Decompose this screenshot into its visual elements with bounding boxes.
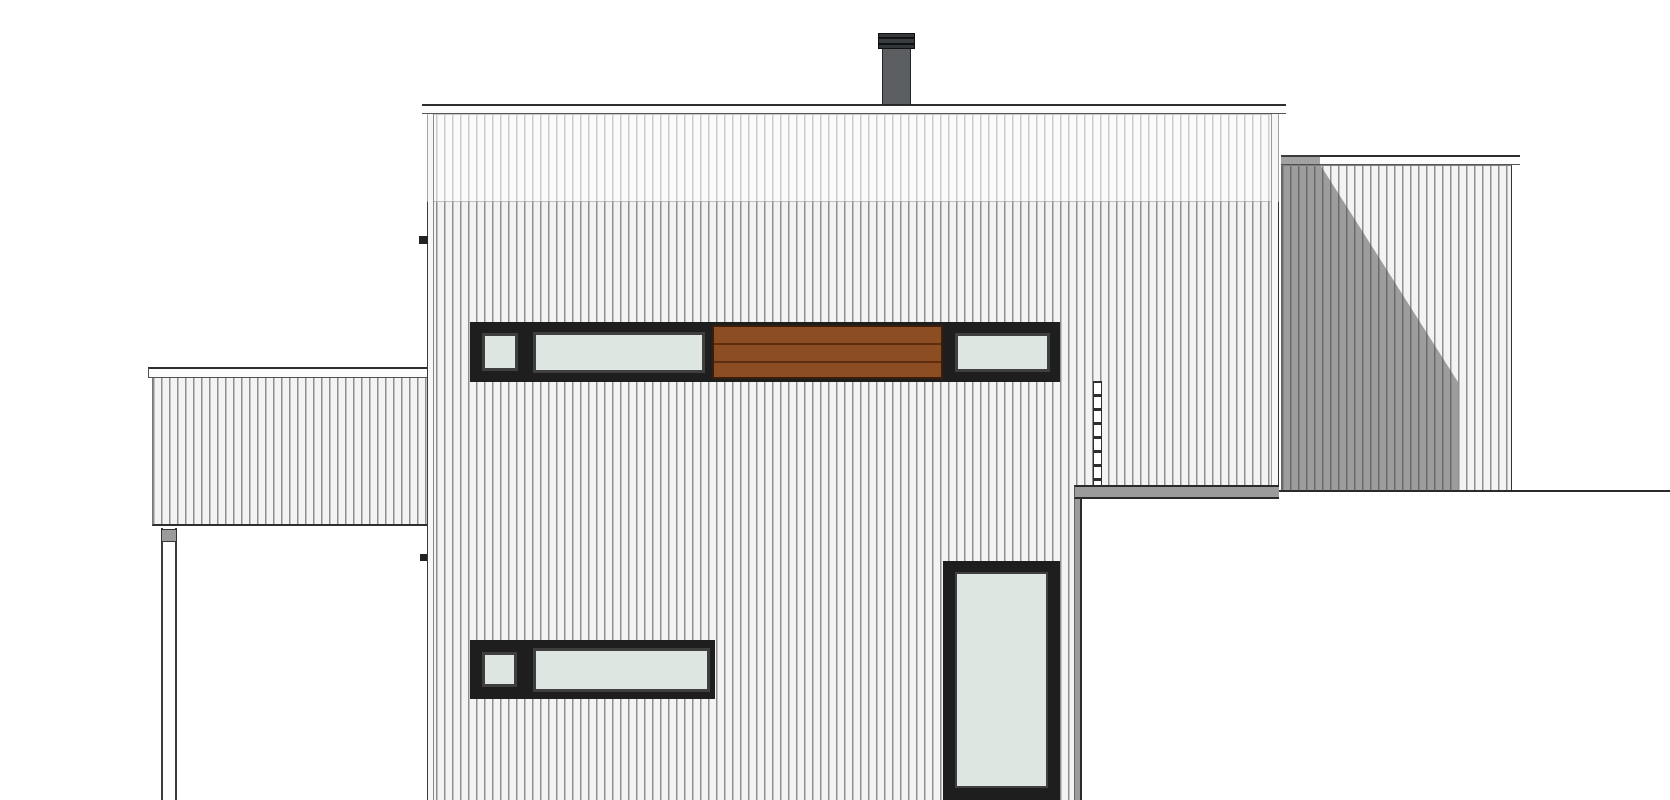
upper-window-band — [470, 322, 1060, 382]
chimney-cap — [878, 33, 915, 49]
left-wing-corner-post — [161, 528, 177, 800]
right-wing-wall-siding — [1281, 165, 1512, 492]
left-wing-post-cap — [161, 529, 177, 542]
ground-line — [1279, 490, 1670, 492]
hidden-downpipe-dashed-line — [1093, 381, 1102, 486]
lower-window-small — [482, 652, 517, 687]
left-wing-wall-siding — [152, 378, 427, 526]
lower-window-band — [470, 640, 715, 699]
lower-window-wide — [533, 648, 710, 692]
right-wing-fascia-shadow — [1281, 155, 1320, 165]
tall-window — [943, 561, 1060, 800]
upper-window-wide — [533, 332, 705, 373]
foreground-roof-edge — [1074, 485, 1279, 499]
main-wall-upper-tint-band — [427, 114, 1279, 202]
main-corner-board-left — [428, 114, 434, 800]
elevation-drawing — [0, 0, 1670, 800]
downpipe-bracket-upper — [419, 236, 428, 244]
main-roof-fascia — [422, 104, 1286, 114]
downpipe-bracket-lower — [420, 554, 427, 561]
foreground-wall — [1082, 499, 1670, 800]
wood-slat-panel — [712, 325, 943, 379]
chimney — [882, 47, 911, 105]
upper-window-right — [955, 333, 1050, 372]
tall-window-glass — [955, 572, 1048, 788]
upper-window-small — [482, 333, 518, 371]
foreground-roof-side-edge — [1074, 497, 1082, 800]
right-wing-cast-shadow — [1282, 166, 1511, 490]
left-wing-roof-fascia — [148, 367, 427, 378]
